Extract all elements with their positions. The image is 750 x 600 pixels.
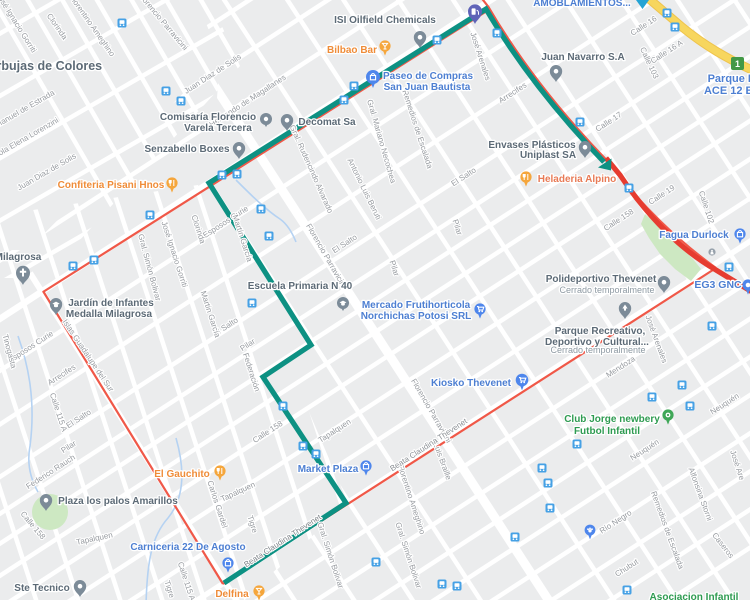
svg-text:Norchichas Potosi SRL: Norchichas Potosi SRL bbox=[361, 311, 472, 322]
svg-text:Varela Tercera: Varela Tercera bbox=[184, 123, 252, 134]
svg-text:Decomat Sa: Decomat Sa bbox=[298, 117, 356, 128]
svg-text:Parque Ind: Parque Ind bbox=[708, 73, 750, 85]
svg-text:Plaza los palos Amarillos: Plaza los palos Amarillos bbox=[58, 496, 178, 507]
svg-text:ISI Oilfield Chemicals: ISI Oilfield Chemicals bbox=[334, 15, 436, 26]
svg-text:Bilbao Bar: Bilbao Bar bbox=[327, 45, 377, 56]
svg-text:Milagrosa: Milagrosa bbox=[0, 252, 42, 263]
svg-text:AMOBLAMIENTOS...: AMOBLAMIENTOS... bbox=[533, 0, 631, 9]
svg-text:Asociacion Infantil: Asociacion Infantil bbox=[650, 592, 739, 600]
svg-text:Market Plaza: Market Plaza bbox=[298, 464, 359, 475]
svg-text:Club Jorge newbery: Club Jorge newbery bbox=[564, 414, 660, 425]
svg-text:Juan Navarro S.A: Juan Navarro S.A bbox=[541, 52, 624, 63]
svg-text:EG3 GNC: EG3 GNC bbox=[694, 279, 742, 291]
svg-text:Delfina: Delfina bbox=[215, 589, 249, 600]
svg-text:Polideportivo Thevenet: Polideportivo Thevenet bbox=[546, 274, 657, 285]
svg-text:Futbol Infantil: Futbol Infantil bbox=[574, 426, 640, 437]
svg-text:Jardín de Infantes: Jardín de Infantes bbox=[68, 298, 154, 309]
svg-text:1: 1 bbox=[735, 59, 740, 69]
svg-text:Confiteria Pisani Hnos: Confiteria Pisani Hnos bbox=[58, 180, 165, 191]
svg-text:Ste Tecnico: Ste Tecnico bbox=[14, 583, 69, 594]
svg-text:Parque Recreativo,: Parque Recreativo, bbox=[555, 326, 646, 337]
svg-text:Escuela Primaria N 40: Escuela Primaria N 40 bbox=[248, 281, 353, 292]
svg-text:Heladeria Alpino: Heladeria Alpino bbox=[538, 174, 617, 185]
svg-text:Cerrado temporalmente: Cerrado temporalmente bbox=[559, 285, 654, 295]
svg-text:Fagua Durlock: Fagua Durlock bbox=[659, 230, 729, 241]
svg-text:Uniplast SA: Uniplast SA bbox=[520, 150, 576, 161]
svg-text:Burbujas de Colores: Burbujas de Colores bbox=[0, 59, 102, 73]
svg-text:Kiosko Thevenet: Kiosko Thevenet bbox=[431, 378, 512, 389]
svg-text:Senzabello Boxes: Senzabello Boxes bbox=[144, 144, 229, 155]
svg-text:Comisaría Florencio: Comisaría Florencio bbox=[160, 112, 256, 123]
svg-text:Cerrado temporalmente: Cerrado temporalmente bbox=[550, 345, 645, 355]
svg-text:Carniceria 22 De Agosto: Carniceria 22 De Agosto bbox=[130, 542, 245, 553]
svg-text:Mercado Frutihorticola: Mercado Frutihorticola bbox=[362, 300, 471, 311]
svg-text:Paseo de Compras: Paseo de Compras bbox=[383, 71, 473, 82]
svg-text:ACE 12 Bera: ACE 12 Bera bbox=[704, 85, 750, 97]
svg-text:San Juan Bautista: San Juan Bautista bbox=[384, 82, 471, 93]
svg-text:Medalla Milagrosa: Medalla Milagrosa bbox=[66, 309, 153, 320]
svg-text:El Gauchito: El Gauchito bbox=[154, 469, 210, 480]
